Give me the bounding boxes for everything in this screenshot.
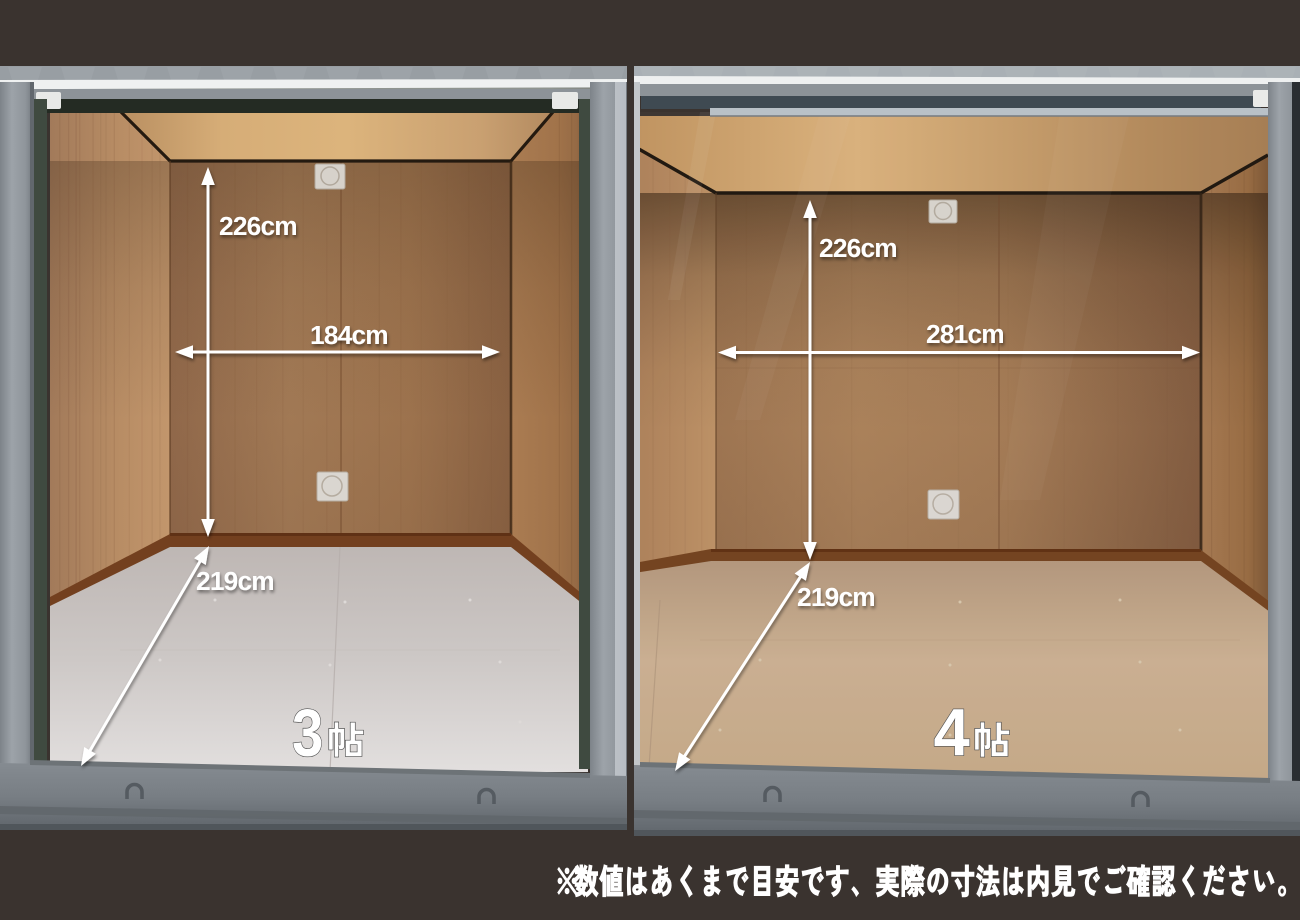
svg-text:219cm: 219cm: [196, 566, 274, 596]
svg-text:184cm: 184cm: [310, 320, 388, 350]
svg-text:226cm: 226cm: [219, 211, 297, 241]
svg-text:219cm: 219cm: [797, 582, 875, 612]
svg-text:3: 3: [292, 696, 323, 771]
svg-text:4: 4: [934, 696, 971, 771]
svg-text:281cm: 281cm: [926, 319, 1004, 349]
svg-text:226cm: 226cm: [819, 233, 897, 263]
